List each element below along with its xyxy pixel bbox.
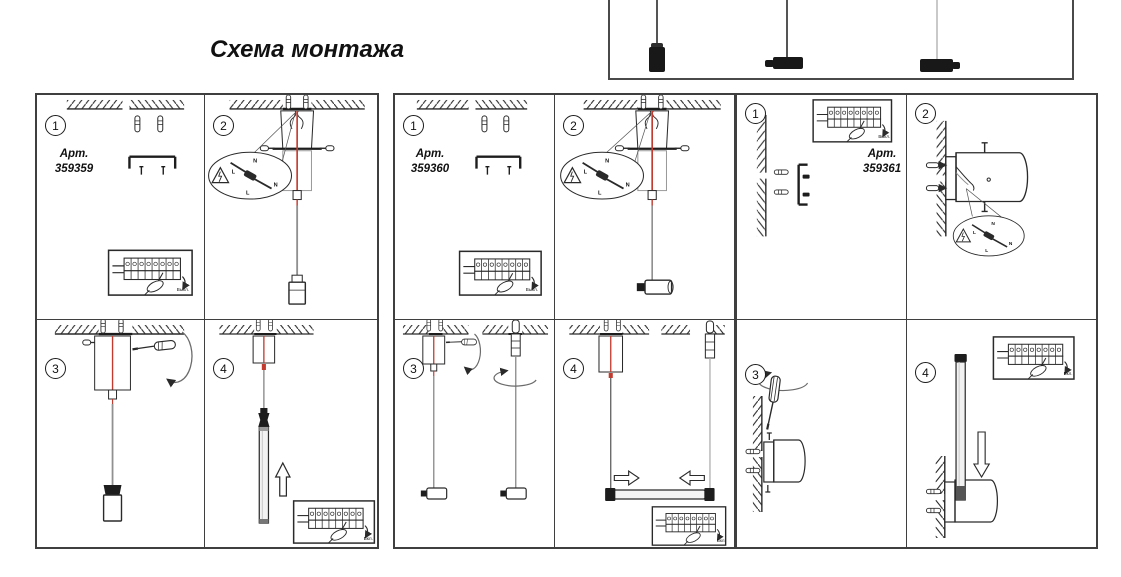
mounting-bracket bbox=[799, 165, 808, 205]
ceiling-hatch bbox=[219, 325, 313, 334]
step-number: 4 bbox=[213, 358, 234, 379]
anchor-icon bbox=[439, 320, 443, 331]
panel1-step4-cell: 4 bbox=[205, 320, 377, 547]
ceiling-hatch bbox=[417, 100, 527, 109]
anchor-icon bbox=[641, 95, 645, 109]
terminal-block-inset bbox=[652, 507, 725, 545]
article-label: Арт. 359359 bbox=[45, 147, 103, 177]
cord-grip bbox=[648, 191, 656, 200]
panel2-step3-cell: 3 bbox=[395, 320, 555, 547]
anchor-icon bbox=[926, 489, 940, 493]
wall-hatch bbox=[937, 121, 946, 236]
article-label: Арт. 359361 bbox=[859, 147, 905, 177]
anchor-icon bbox=[774, 170, 788, 174]
ceiling-hatch bbox=[403, 325, 548, 334]
cylinder-body-drawing bbox=[774, 440, 805, 482]
step-number: 4 bbox=[915, 362, 936, 383]
switch-on-label: Вкл. bbox=[364, 536, 373, 541]
anchor-icon bbox=[286, 95, 290, 109]
spot-lamp-drawing bbox=[500, 488, 526, 499]
down-arrow-icon bbox=[974, 432, 989, 477]
bracket-screw bbox=[803, 175, 810, 179]
height-adjuster-drawing bbox=[705, 321, 714, 358]
step-number: 2 bbox=[563, 115, 584, 136]
spot-lamp-drawing bbox=[421, 488, 447, 499]
panel3-step1-cell: 1 Арт. 359361 Выкл. bbox=[737, 95, 907, 320]
bracket-screw bbox=[803, 193, 810, 197]
article-label: Арт. 359360 bbox=[401, 147, 459, 177]
wiring-warning-balloon bbox=[561, 152, 644, 199]
step-number: 2 bbox=[915, 103, 936, 124]
panel2-step1-cell: 1 Арт. 359360 Выкл. bbox=[395, 95, 555, 320]
anchor-icon bbox=[119, 320, 123, 333]
art-number: 359359 bbox=[45, 162, 103, 177]
socket-drawing bbox=[289, 275, 305, 304]
tube-lamp-drawing bbox=[258, 408, 269, 524]
wall-hatch bbox=[936, 456, 945, 538]
installation-scheme-page: N L N L Схема монтажа 1 bbox=[0, 0, 1121, 577]
panel1-step2-cell: 2 bbox=[205, 95, 377, 320]
panel1-step3-cell: 3 bbox=[37, 320, 205, 547]
wiring-warning-balloon bbox=[209, 152, 292, 199]
horizontal-pendant-lamp bbox=[920, 59, 953, 72]
product-overview-box bbox=[608, 0, 1074, 80]
anchor-icon bbox=[659, 95, 663, 109]
red-connector bbox=[262, 364, 266, 370]
ceiling-hatch bbox=[67, 100, 184, 109]
panel-359360: 1 Арт. 359360 Выкл. 2 bbox=[393, 93, 736, 549]
anchor-icon bbox=[774, 190, 788, 194]
anchor-icon bbox=[926, 508, 940, 512]
step-number: 4 bbox=[563, 358, 584, 379]
height-adjuster-drawing bbox=[511, 320, 520, 356]
art-word: Арт. bbox=[45, 147, 103, 162]
cord-grip bbox=[109, 390, 117, 399]
pendant-cord bbox=[936, 0, 938, 59]
step-number: 1 bbox=[45, 115, 66, 136]
right-arrow-icon bbox=[614, 471, 639, 485]
anchor-icon bbox=[256, 320, 260, 331]
anchor-icon bbox=[746, 468, 760, 472]
anchor-icon bbox=[746, 449, 760, 453]
switch-off-label: Выкл. bbox=[177, 287, 189, 292]
panel3-step2-cell: 2 bbox=[907, 95, 1096, 320]
tube-lamp-drawing bbox=[605, 488, 714, 501]
screw-icon bbox=[765, 485, 770, 492]
anchor-icon bbox=[427, 320, 431, 331]
step-number: 3 bbox=[45, 358, 66, 379]
panel3-step3-cell: 3 bbox=[737, 320, 907, 547]
up-arrow-icon bbox=[276, 463, 290, 496]
art-number: 359360 bbox=[401, 162, 459, 177]
mounting-bracket bbox=[129, 157, 175, 175]
step-number: 3 bbox=[745, 364, 766, 385]
step-number: 1 bbox=[403, 115, 424, 136]
panel3-step4-cell: 4 Вкл. bbox=[907, 320, 1096, 547]
art-word: Арт. bbox=[859, 147, 905, 162]
screwdriver-icon bbox=[132, 340, 176, 353]
tube-lamp-drawing bbox=[955, 354, 967, 500]
cylinder-body-drawing bbox=[956, 143, 1028, 212]
screwdriver-icon bbox=[765, 376, 780, 431]
panel2-step2-cell: 2 bbox=[555, 95, 734, 320]
switch-on-label: Вкл. bbox=[717, 538, 726, 543]
socket-drawing bbox=[104, 485, 122, 521]
rotation-arrow-icon bbox=[168, 332, 192, 382]
cord-grip bbox=[293, 191, 301, 200]
wall-plate bbox=[946, 157, 956, 200]
panel-359361: 1 Арт. 359361 Выкл. bbox=[735, 93, 1098, 549]
step-number: 3 bbox=[403, 358, 424, 379]
step-number: 2 bbox=[213, 115, 234, 136]
wiring-warning-balloon bbox=[953, 216, 1024, 256]
art-number: 359361 bbox=[859, 162, 905, 177]
anchor-icon bbox=[101, 320, 105, 333]
anchor-icon bbox=[482, 116, 487, 132]
switch-off-label: Выкл. bbox=[878, 134, 890, 139]
panel-359359: 1 Арт. 359359 Выкл. 2 bbox=[35, 93, 379, 549]
wall-plate bbox=[764, 442, 774, 482]
anchor-icon bbox=[604, 320, 608, 331]
canopy-drawing bbox=[83, 336, 131, 390]
anchor-icon bbox=[304, 95, 308, 109]
pendant-nub bbox=[952, 62, 960, 69]
art-word: Арт. bbox=[401, 147, 459, 162]
anchor-icon bbox=[504, 116, 509, 132]
spot-lamp-drawing bbox=[637, 280, 673, 294]
step-number: 1 bbox=[745, 103, 766, 124]
panel2-step4-cell: 4 bbox=[555, 320, 734, 547]
page-title: Схема монтажа bbox=[210, 36, 404, 64]
left-arrow-icon bbox=[680, 471, 705, 485]
terminal-block-inset bbox=[993, 337, 1074, 379]
anchor-icon bbox=[269, 320, 273, 331]
anchor-icon bbox=[158, 116, 163, 132]
wall-hatch bbox=[757, 115, 766, 236]
ceiling-hatch bbox=[569, 325, 724, 334]
wall-plate bbox=[945, 482, 955, 522]
cord-grip bbox=[431, 364, 437, 371]
pendant-cord bbox=[786, 0, 788, 57]
switch-off-label: Выкл. bbox=[526, 287, 538, 292]
anchor-icon bbox=[616, 320, 620, 331]
screw-icon bbox=[767, 433, 772, 440]
ceiling-hatch bbox=[584, 100, 721, 109]
terminal-block-inset bbox=[294, 501, 375, 543]
panel1-step1-cell: 1 Арт. 359359 Выкл. bbox=[37, 95, 205, 320]
horizontal-pendant-lamp bbox=[773, 57, 803, 69]
switch-on-label: Вкл. bbox=[1064, 371, 1073, 376]
red-connector bbox=[609, 373, 613, 378]
ceiling-hatch bbox=[230, 100, 365, 109]
screwdriver-icon bbox=[446, 339, 477, 345]
pendant-cord bbox=[656, 0, 658, 47]
vertical-pendant-lamp bbox=[649, 47, 665, 72]
anchor-icon bbox=[135, 116, 140, 132]
mounting-bracket bbox=[476, 157, 520, 175]
